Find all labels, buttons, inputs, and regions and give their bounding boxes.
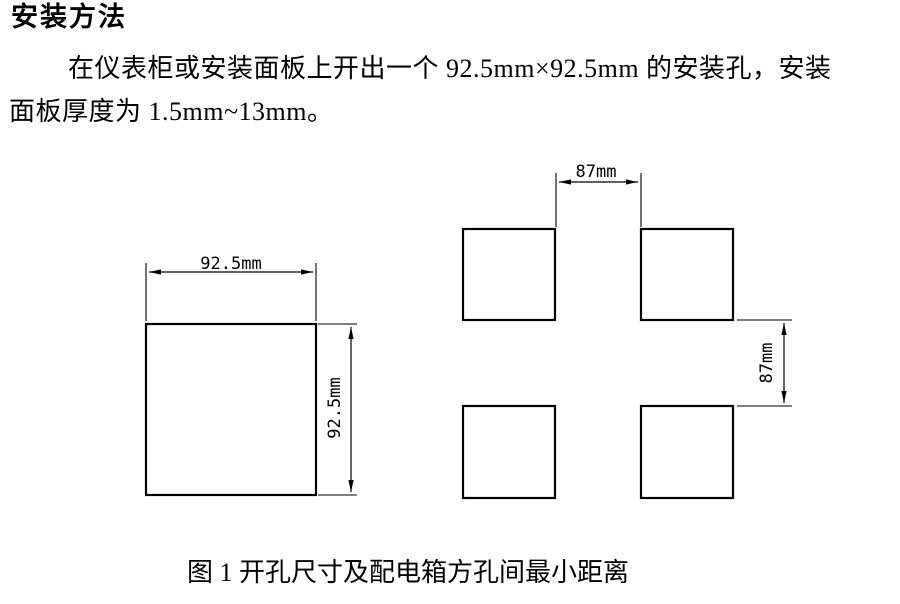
width-dimension: 92.5mm [146, 254, 316, 321]
cutout-square-bottom-left [463, 406, 555, 498]
single-cutout-figure: 92.5mm 92.5mm [146, 254, 357, 495]
cutout-square-bottom-right [641, 406, 733, 498]
cutout-square-top-left [463, 229, 555, 320]
manual-page: 安装方法 在仪表柜或安装面板上开出一个 92.5mm×92.5mm 的安装孔，安… [0, 0, 900, 604]
figure-caption: 图 1 开孔尺寸及配电箱方孔间最小距离 [0, 560, 816, 586]
height-dimension-label: 92.5mm [325, 377, 345, 438]
horizontal-spacing-dimension: 87mm [556, 162, 641, 227]
cutout-dimension-drawing: 92.5mm 92.5mm 87mm [0, 0, 900, 604]
vertical-spacing-label: 87mm [757, 343, 777, 384]
vertical-spacing-dimension: 87mm [737, 320, 792, 406]
spacing-grid-figure: 87mm 87mm [463, 162, 792, 498]
cutout-square-top-right [641, 229, 733, 320]
height-dimension: 92.5mm [318, 324, 357, 495]
width-dimension-label: 92.5mm [200, 254, 261, 274]
horizontal-spacing-label: 87mm [576, 162, 617, 182]
cutout-square [146, 324, 316, 495]
